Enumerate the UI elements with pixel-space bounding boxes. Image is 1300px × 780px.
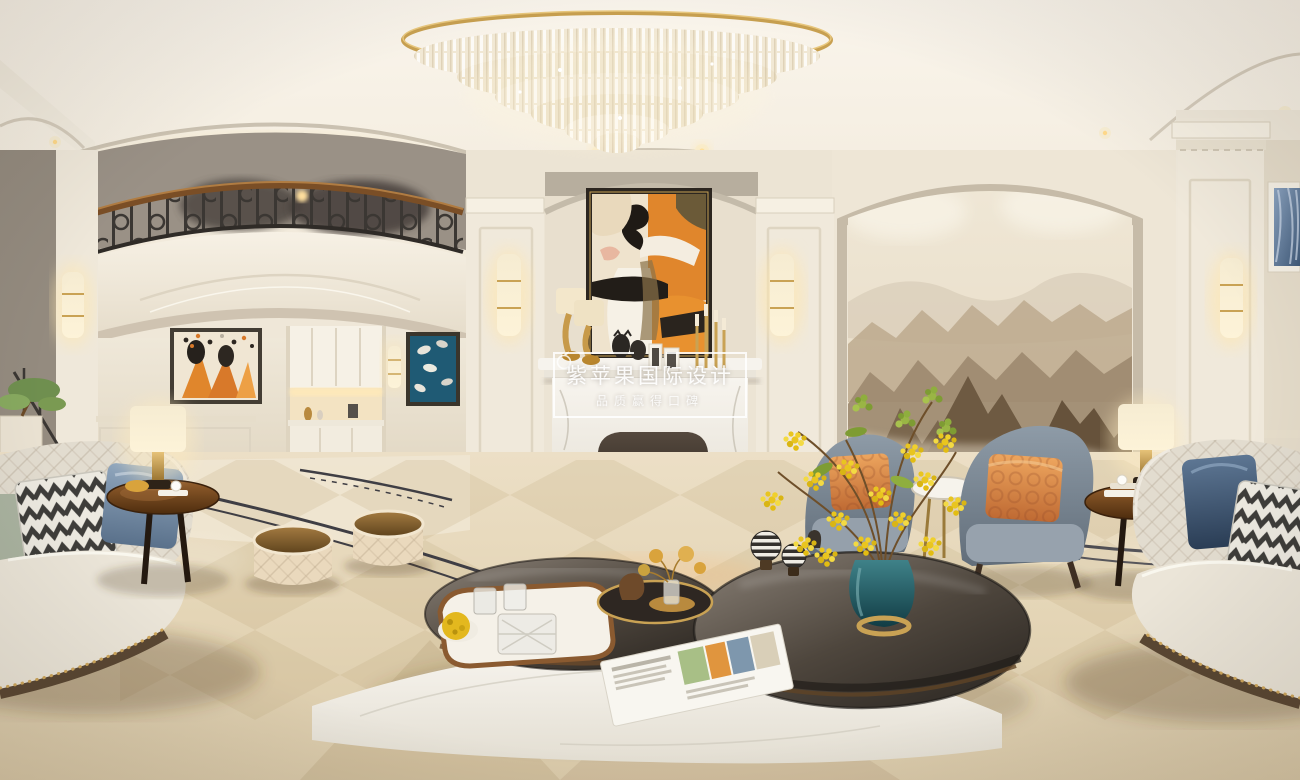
panorama-image: 紫苹果国际设计 品质赢得口碑 bbox=[0, 0, 1300, 780]
watermark: 紫苹果国际设计 品质赢得口碑 bbox=[552, 350, 748, 420]
watermark-title: 紫苹果国际设计 bbox=[552, 360, 748, 390]
watermark-subtitle: 品质赢得口碑 bbox=[552, 392, 748, 409]
